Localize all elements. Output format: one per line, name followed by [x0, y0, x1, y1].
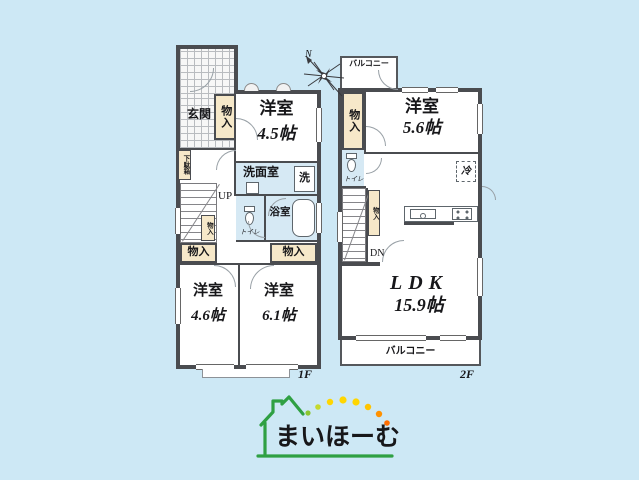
- floor2-caption: 2F: [460, 368, 474, 381]
- floorplan-page: { "colors": { "background": "#cde8f5", "…: [0, 0, 639, 480]
- closet-2f-hall-label: 物入: [371, 207, 378, 220]
- ldk-size: 15.9帖: [360, 296, 478, 316]
- kitchen-sink-drain: [420, 213, 426, 219]
- logo-dots: [305, 396, 389, 425]
- balcony-bottom-label: バルコニー: [340, 346, 481, 357]
- window-room56-top-left: [402, 87, 428, 93]
- compass-icon: N: [296, 48, 350, 102]
- window-room56-top-right: [436, 87, 458, 93]
- stairs-dn-label: DN: [370, 248, 384, 259]
- ldk-label: LDK 15.9帖: [360, 272, 478, 316]
- 2f-part-room56-bottom: [364, 152, 478, 154]
- logo-brand-text: まいほーむ: [275, 424, 400, 451]
- door-ldk-exterior: [482, 186, 496, 200]
- room56-label: 洋室 5.6帖: [366, 98, 478, 137]
- window-ldk-bottom-left: [356, 335, 426, 341]
- room56-size: 5.6帖: [366, 119, 478, 138]
- compass-n-label: N: [304, 49, 313, 60]
- ldk-name: LDK: [360, 272, 478, 294]
- kitchen-stove: [452, 208, 472, 220]
- logo-house-roof: [261, 397, 303, 425]
- maihomu-logo: まいほーむ: [248, 390, 400, 468]
- 2f-part-stairs-bottom: [342, 262, 380, 266]
- toilet-2f-label: トイレ: [344, 176, 364, 183]
- room56-name: 洋室: [366, 98, 478, 117]
- 2f-part-counter-base: [404, 222, 454, 225]
- stairs-2f: [342, 188, 366, 262]
- window-ldk-bottom-right: [440, 335, 466, 341]
- window-stairs2-left: [337, 212, 343, 242]
- closet-2f-hall: 物入: [368, 190, 380, 236]
- closet-2f-top-label: 物入: [347, 109, 359, 133]
- fridge-label: 冷: [456, 166, 476, 177]
